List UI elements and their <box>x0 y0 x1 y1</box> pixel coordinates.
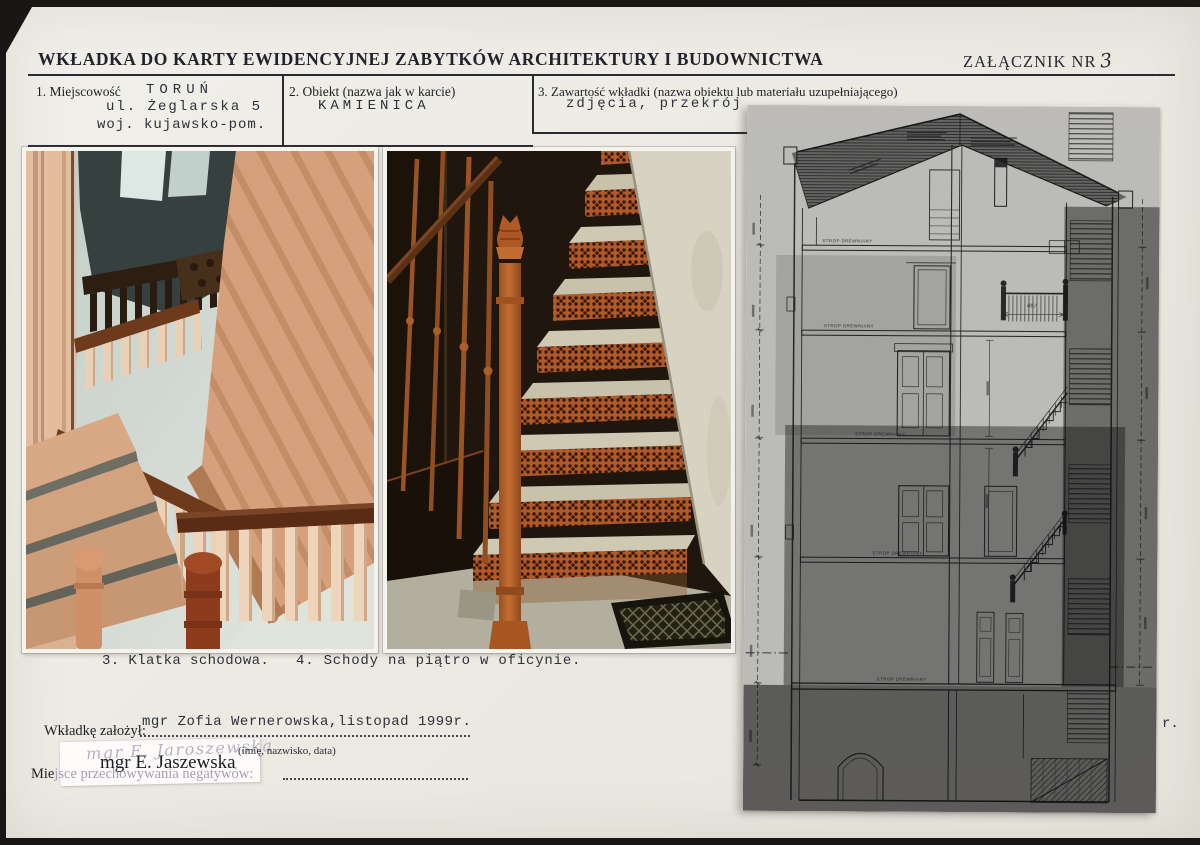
founder-ruled-line <box>140 735 470 737</box>
cross-section-drawing <box>743 105 1160 814</box>
photocopy-noise <box>743 105 1160 814</box>
stray-typed-fragment: r. <box>1162 716 1179 732</box>
stone-base <box>458 589 497 621</box>
cross-section-sheet: STROP DREWNIANY STROP DREWNIANY STROP DR… <box>743 105 1160 814</box>
floor-annotation-4: STROP DREWNIANY <box>872 551 922 556</box>
field-divider-2 <box>532 76 534 133</box>
caption-photo-3: 3. Klatka schodowa. <box>102 653 269 669</box>
newel-post-salmon <box>74 547 104 649</box>
negatives-ruled-line <box>283 778 468 780</box>
floor-annotation-1: STROP DREWNIANY <box>822 238 872 243</box>
negatives-label-covered: jsce przechowywania negatywów: <box>54 766 253 782</box>
founder-hint: (imię, nazwisko, data) <box>238 745 336 757</box>
photo-iron-stairs-image <box>387 151 731 649</box>
negatives-label: Miejsce przechowywania negatywów: <box>31 766 253 783</box>
field-place-street: ul. Żeglarska 5 <box>106 99 262 115</box>
photo-stairwell-image <box>26 151 374 649</box>
attachment-label: ZAŁĄCZNIK NR3 <box>963 50 1114 72</box>
photo-iron-stairs <box>383 147 735 653</box>
page-title: WKŁADKA DO KARTY EWIDENCYJNEJ ZABYTKÓW A… <box>38 49 823 70</box>
attachment-number: 3 <box>1099 49 1114 72</box>
newel-post-dark <box>184 552 222 649</box>
negatives-label-visible: Mie <box>31 766 54 782</box>
attachment-text: ZAŁĄCZNIK NR <box>963 52 1096 71</box>
window-pane <box>120 151 166 201</box>
founder-value: mgr Zofia Wernerowska,listopad 1999r. <box>142 714 471 730</box>
field-place-voivodeship: woj. kujawsko-pom. <box>97 117 266 133</box>
landing-dimension: 467 <box>1027 303 1037 309</box>
field-divider-1 <box>282 76 284 146</box>
field-contents-value: zdjęcia, przekrój <box>566 96 743 112</box>
floor-annotation-2: STROP DREWNIANY <box>824 323 874 328</box>
photo-stairwell <box>22 147 378 653</box>
floor-annotation-5: STROP DREWNIANY <box>877 677 927 682</box>
caption-photo-4: 4. Schody na piątro w oficynie. <box>296 653 581 669</box>
field-place-label: 1. Miejscowość <box>36 84 121 100</box>
window-pane-2 <box>168 151 210 197</box>
header-rule <box>28 74 1175 76</box>
founder-label: Wkładkę założył: <box>44 723 146 740</box>
field-object-value: KAMIENICA <box>318 98 430 114</box>
scanned-heritage-card: WKŁADKA DO KARTY EWIDENCYJNEJ ZABYTKÓW A… <box>0 0 1200 845</box>
field-bottom-rule-3 <box>532 132 749 134</box>
floor-annotation-3: STROP DREWNIANY <box>855 431 905 436</box>
field-place-city: TORUŃ <box>146 82 213 98</box>
